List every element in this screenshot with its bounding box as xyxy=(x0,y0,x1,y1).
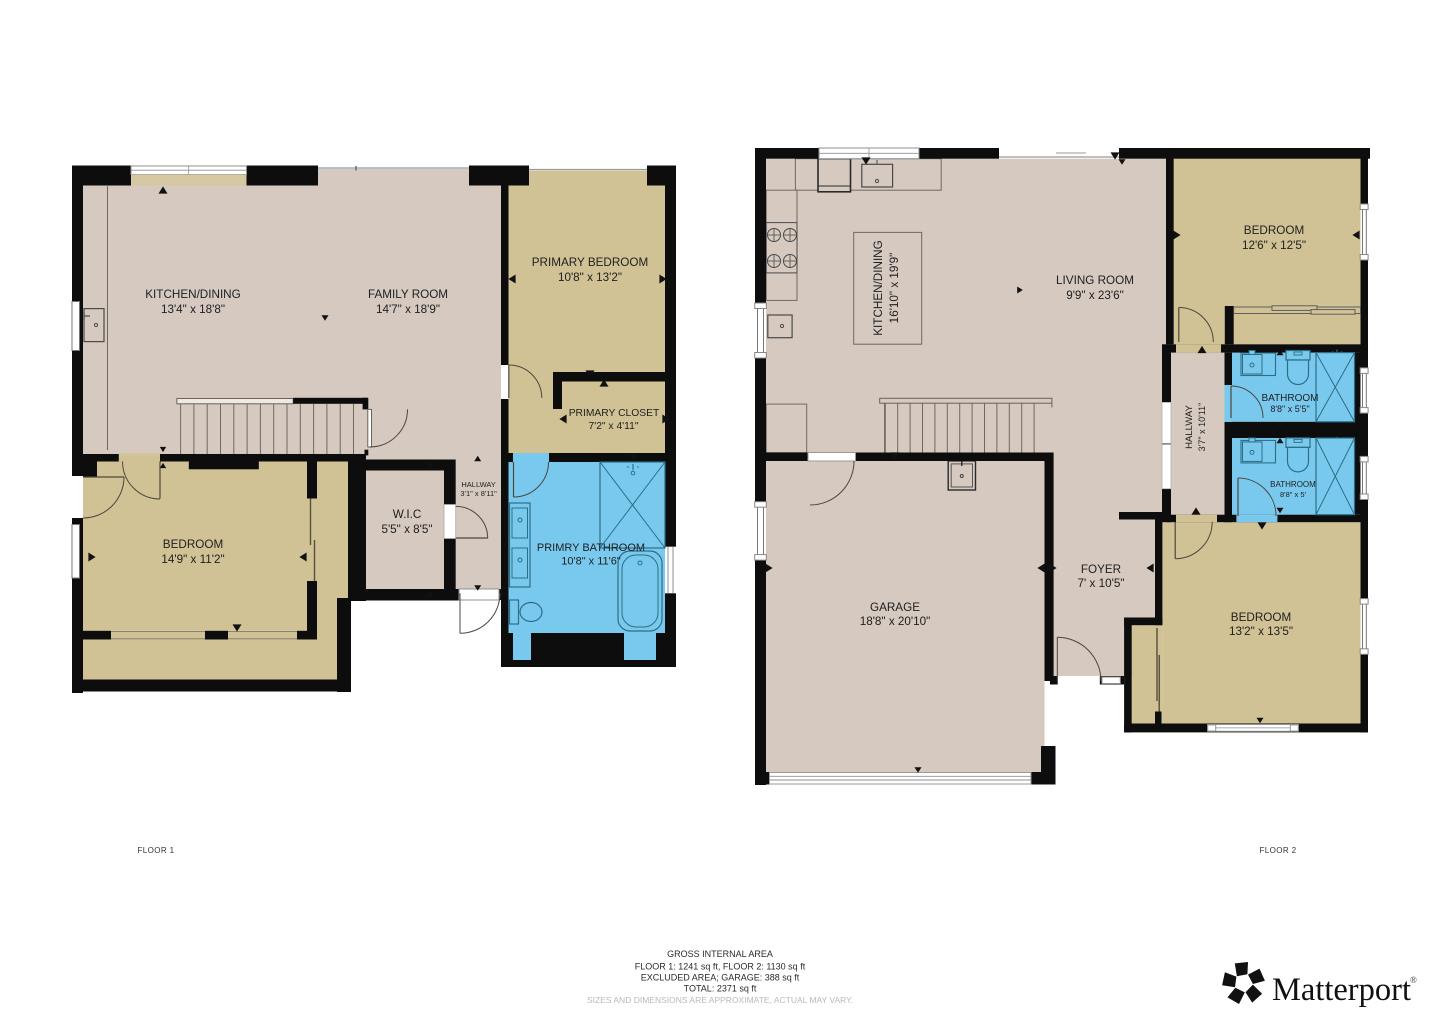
svg-text:LIVING ROOM: LIVING ROOM xyxy=(1056,274,1134,287)
svg-text:7'2" x 4'11": 7'2" x 4'11" xyxy=(589,421,639,432)
svg-text:8'8" x 5': 8'8" x 5' xyxy=(1280,490,1307,499)
svg-text:3'1" x 8'11": 3'1" x 8'11" xyxy=(460,489,497,498)
svg-text:14'9" x 11'2": 14'9" x 11'2" xyxy=(161,553,224,566)
svg-text:18'8" x 20'10": 18'8" x 20'10" xyxy=(860,615,931,628)
svg-text:14'7" x 18'9": 14'7" x 18'9" xyxy=(376,303,440,316)
svg-text:PRIMARY CLOSET: PRIMARY CLOSET xyxy=(569,408,660,419)
svg-text:W.I.C: W.I.C xyxy=(393,508,422,521)
svg-text:BEDROOM: BEDROOM xyxy=(163,538,223,551)
svg-text:FAMILY ROOM: FAMILY ROOM xyxy=(368,288,448,301)
svg-text:FOYER: FOYER xyxy=(1081,563,1121,576)
svg-text:TOTAL: 2371 sq ft: TOTAL: 2371 sq ft xyxy=(684,984,757,994)
svg-text:13'2" x 13'5": 13'2" x 13'5" xyxy=(1229,625,1293,638)
svg-text:BATHROOM: BATHROOM xyxy=(1261,393,1318,404)
svg-text:8'8" x 5'5": 8'8" x 5'5" xyxy=(1270,404,1309,414)
svg-text:SIZES AND DIMENSIONS ARE APPRO: SIZES AND DIMENSIONS ARE APPROXIMATE, AC… xyxy=(587,995,853,1005)
svg-text:BEDROOM: BEDROOM xyxy=(1244,224,1304,237)
svg-text:BATHROOM: BATHROOM xyxy=(1270,480,1316,489)
svg-text:FLOOR 1: 1241 sq ft, FLOOR 2:: FLOOR 1: 1241 sq ft, FLOOR 2: 1130 sq ft xyxy=(635,962,806,972)
svg-text:PRIMRY BATHROOM: PRIMRY BATHROOM xyxy=(537,542,645,554)
svg-text:13'4" x 18'8": 13'4" x 18'8" xyxy=(161,303,225,316)
svg-text:3'7" x 10'11": 3'7" x 10'11" xyxy=(1197,403,1207,452)
svg-text:HALLWAY: HALLWAY xyxy=(1184,405,1195,449)
svg-text:10'8" x 13'2": 10'8" x 13'2" xyxy=(558,271,622,284)
svg-text:10'8" x 11'6": 10'8" x 11'6" xyxy=(561,556,621,568)
svg-text:7' x 10'5": 7' x 10'5" xyxy=(1078,577,1125,590)
svg-text:9'9" x 23'6": 9'9" x 23'6" xyxy=(1066,289,1124,302)
svg-text:GARAGE: GARAGE xyxy=(870,601,920,614)
svg-text:KITCHEN/DINING: KITCHEN/DINING xyxy=(872,240,885,335)
svg-text:FLOOR 2: FLOOR 2 xyxy=(1259,846,1296,855)
svg-text:BEDROOM: BEDROOM xyxy=(1231,611,1291,624)
svg-text:Matterport: Matterport xyxy=(1272,972,1411,1008)
svg-text:5'5" x 8'5": 5'5" x 8'5" xyxy=(381,523,432,536)
svg-text:PRIMARY BEDROOM: PRIMARY BEDROOM xyxy=(532,256,648,269)
svg-text:FLOOR 1: FLOOR 1 xyxy=(137,846,174,855)
svg-text:GROSS INTERNAL AREA: GROSS INTERNAL AREA xyxy=(667,949,773,959)
svg-text:KITCHEN/DINING: KITCHEN/DINING xyxy=(145,288,240,301)
svg-text:HALLWAY: HALLWAY xyxy=(461,480,495,489)
svg-text:EXCLUDED AREA; GARAGE: 388 sq: EXCLUDED AREA; GARAGE: 388 sq ft xyxy=(641,973,800,983)
svg-text:®: ® xyxy=(1410,975,1417,985)
svg-text:12'6" x 12'5": 12'6" x 12'5" xyxy=(1242,239,1306,252)
svg-text:16'10" x 19'9": 16'10" x 19'9" xyxy=(888,253,901,324)
